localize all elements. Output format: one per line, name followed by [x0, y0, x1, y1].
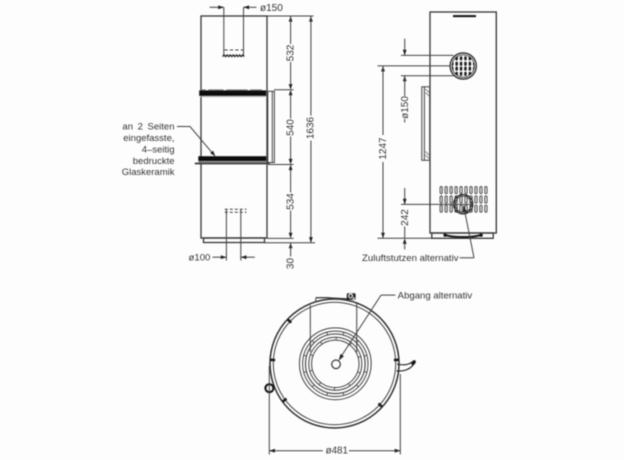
svg-text:ø100: ø100	[189, 253, 211, 264]
svg-text:ø150: ø150	[260, 3, 283, 14]
svg-text:Glaskeramik: Glaskeramik	[122, 167, 175, 178]
svg-text:an 2 Seiten: an 2 Seiten	[122, 122, 174, 133]
svg-text:eingefasste,: eingefasste,	[123, 133, 174, 144]
svg-text:242: 242	[400, 209, 411, 226]
svg-text:1636: 1636	[306, 116, 317, 139]
svg-text:ø150: ø150	[400, 96, 411, 119]
svg-text:1247: 1247	[378, 137, 389, 160]
svg-text:532: 532	[286, 44, 297, 61]
svg-text:540: 540	[286, 119, 297, 136]
svg-text:534: 534	[286, 193, 297, 210]
svg-text:ø481: ø481	[326, 445, 348, 456]
svg-text:Zuluftstutzen alternativ: Zuluftstutzen alternativ	[362, 253, 459, 264]
svg-text:bedruckte: bedruckte	[133, 156, 175, 167]
svg-text:Abgang alternativ: Abgang alternativ	[398, 291, 473, 302]
svg-text:4–seitig: 4–seitig	[142, 144, 175, 155]
svg-text:30: 30	[286, 258, 297, 270]
